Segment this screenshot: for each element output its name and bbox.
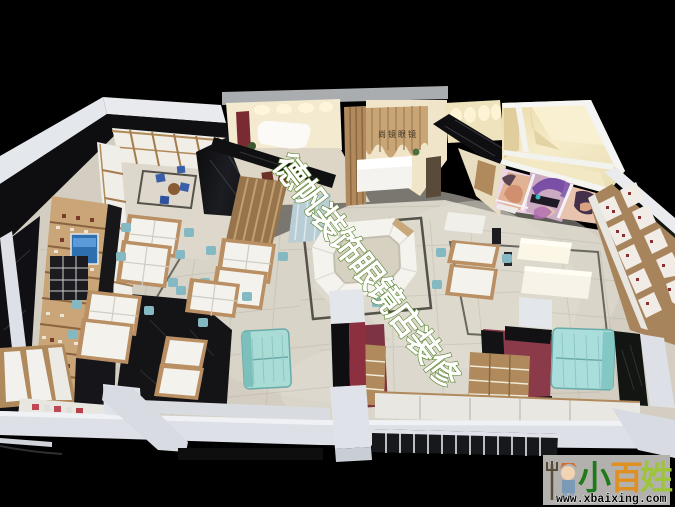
svg-text:尚镜眼镜: 尚镜眼镜: [378, 129, 418, 139]
svg-text:百: 百: [610, 459, 643, 496]
svg-text:www.xbaixing.com: www.xbaixing.com: [556, 493, 667, 506]
svg-text:小: 小: [578, 459, 611, 496]
svg-text:姓: 姓: [640, 459, 673, 496]
